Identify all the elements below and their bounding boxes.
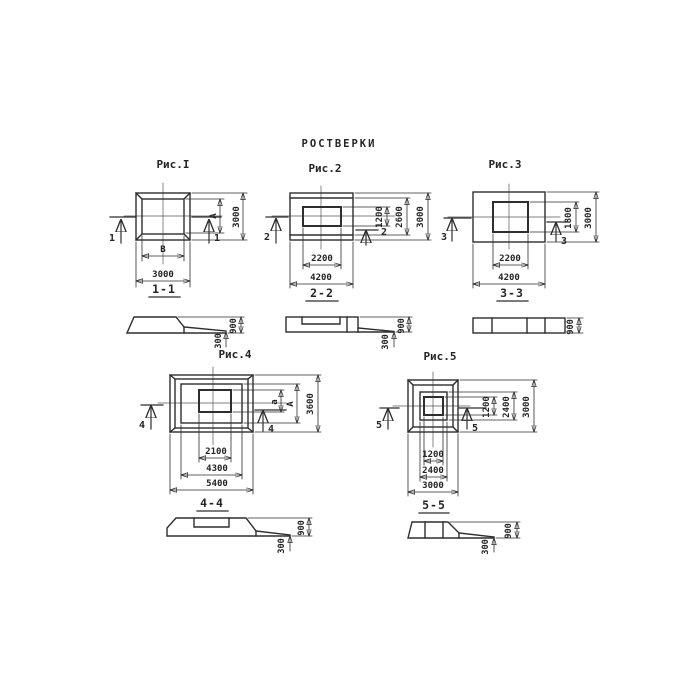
fig5-section-title: 5-5 <box>422 498 446 512</box>
section1-total-height: 900 <box>229 318 239 333</box>
fig4-dim-mid-height: А <box>286 401 296 407</box>
fig5-dim-outer-height: 3000 <box>522 396 532 418</box>
section4-view: 300 900 <box>167 518 312 554</box>
fig2-dim-mid-height: 2600 <box>395 206 405 228</box>
fig1-marker-left: 1 <box>109 233 115 244</box>
fig1-label: Рис.I <box>156 158 189 171</box>
fig1-dim-inner-width: В <box>160 245 166 255</box>
section4-step-height: 300 <box>277 538 287 553</box>
fig4-dim-outer-width: 5400 <box>206 479 228 489</box>
section2-view: 300 900 <box>286 317 412 350</box>
fig1-plan: Рис.I 1 1 В 3000 А 3000 1-1 <box>109 158 247 297</box>
section5-view: 300 900 <box>408 522 520 555</box>
fig4-label: Рис.4 <box>218 348 251 361</box>
drawing-sheet: РОСТВЕРКИ Рис.I 1 1 В 3000 А <box>0 0 700 700</box>
fig2-dim-opening-height: 1200 <box>375 206 385 228</box>
fig5-marker-left: 5 <box>376 420 382 431</box>
fig3-marker-right: 3 <box>561 236 567 247</box>
fig3-marker-left: 3 <box>441 232 447 243</box>
fig5-dim-inner-width: 1200 <box>422 450 444 460</box>
section4-total-height: 900 <box>297 520 307 535</box>
fig5-label: Рис.5 <box>423 350 456 363</box>
fig2-label: Рис.2 <box>308 162 341 175</box>
fig5-dim-inner-height: 1200 <box>482 396 492 418</box>
fig2-plan: Рис.2 2 2 2200 4200 1200 2600 <box>264 162 431 301</box>
fig1-dim-outer-width: 3000 <box>152 270 174 280</box>
fig4-dim-inner-width: 2100 <box>205 447 227 457</box>
section3-view: 900 <box>473 318 583 335</box>
fig2-dim-outer-height: 3000 <box>416 206 426 228</box>
fig3-section-title: 3-3 <box>500 286 524 300</box>
section5-total-height: 900 <box>504 523 514 538</box>
fig2-dim-outer-width: 4200 <box>310 273 332 283</box>
fig1-marker-right: 1 <box>214 233 220 244</box>
section3-total-height: 900 <box>566 319 576 334</box>
fig1-dim-inner-height: А <box>209 213 219 219</box>
fig5-dim-outer-width: 3000 <box>422 481 444 491</box>
fig4-dim-outer-height: 3600 <box>306 393 316 415</box>
fig3-dim-outer-width: 4200 <box>498 273 520 283</box>
fig1-section-title: 1-1 <box>152 282 176 296</box>
fig3-plan: Рис.3 3 3 2200 4200 1800 3000 3-3 <box>441 158 599 301</box>
fig1-dim-outer-height: 3000 <box>232 206 242 228</box>
section5-step-height: 300 <box>481 539 491 554</box>
fig4-dim-inner-height: а <box>270 399 280 404</box>
section1-view: 300 900 <box>127 317 244 349</box>
grillage-technical-drawing: РОСТВЕРКИ Рис.I 1 1 В 3000 А <box>0 0 700 700</box>
fig4-marker-right: 4 <box>268 424 274 435</box>
fig5-dim-mid-height: 2400 <box>502 396 512 418</box>
fig4-section-title: 4-4 <box>200 496 224 510</box>
fig5-dim-mid-width: 2400 <box>422 466 444 476</box>
fig5-plan: Рис.5 5 5 1200 2400 3000 <box>376 350 537 513</box>
fig2-dim-inner-width: 2200 <box>311 254 333 264</box>
fig3-dim-opening-height: 1800 <box>564 207 574 229</box>
fig2-section-title: 2-2 <box>310 286 334 300</box>
section2-step-height: 300 <box>381 334 391 349</box>
fig2-marker-left: 2 <box>264 232 270 243</box>
fig4-dim-mid-width: 4300 <box>206 464 228 474</box>
fig3-label: Рис.3 <box>488 158 521 171</box>
fig4-plan: Рис.4 4 4 2100 4300 5400 <box>139 348 321 511</box>
fig3-dim-inner-width: 2200 <box>499 254 521 264</box>
section1-step-height: 300 <box>214 333 224 348</box>
fig4-marker-left: 4 <box>139 420 145 431</box>
section2-total-height: 900 <box>397 318 407 333</box>
fig3-dim-outer-height: 3000 <box>584 207 594 229</box>
sheet-title: РОСТВЕРКИ <box>302 138 377 150</box>
